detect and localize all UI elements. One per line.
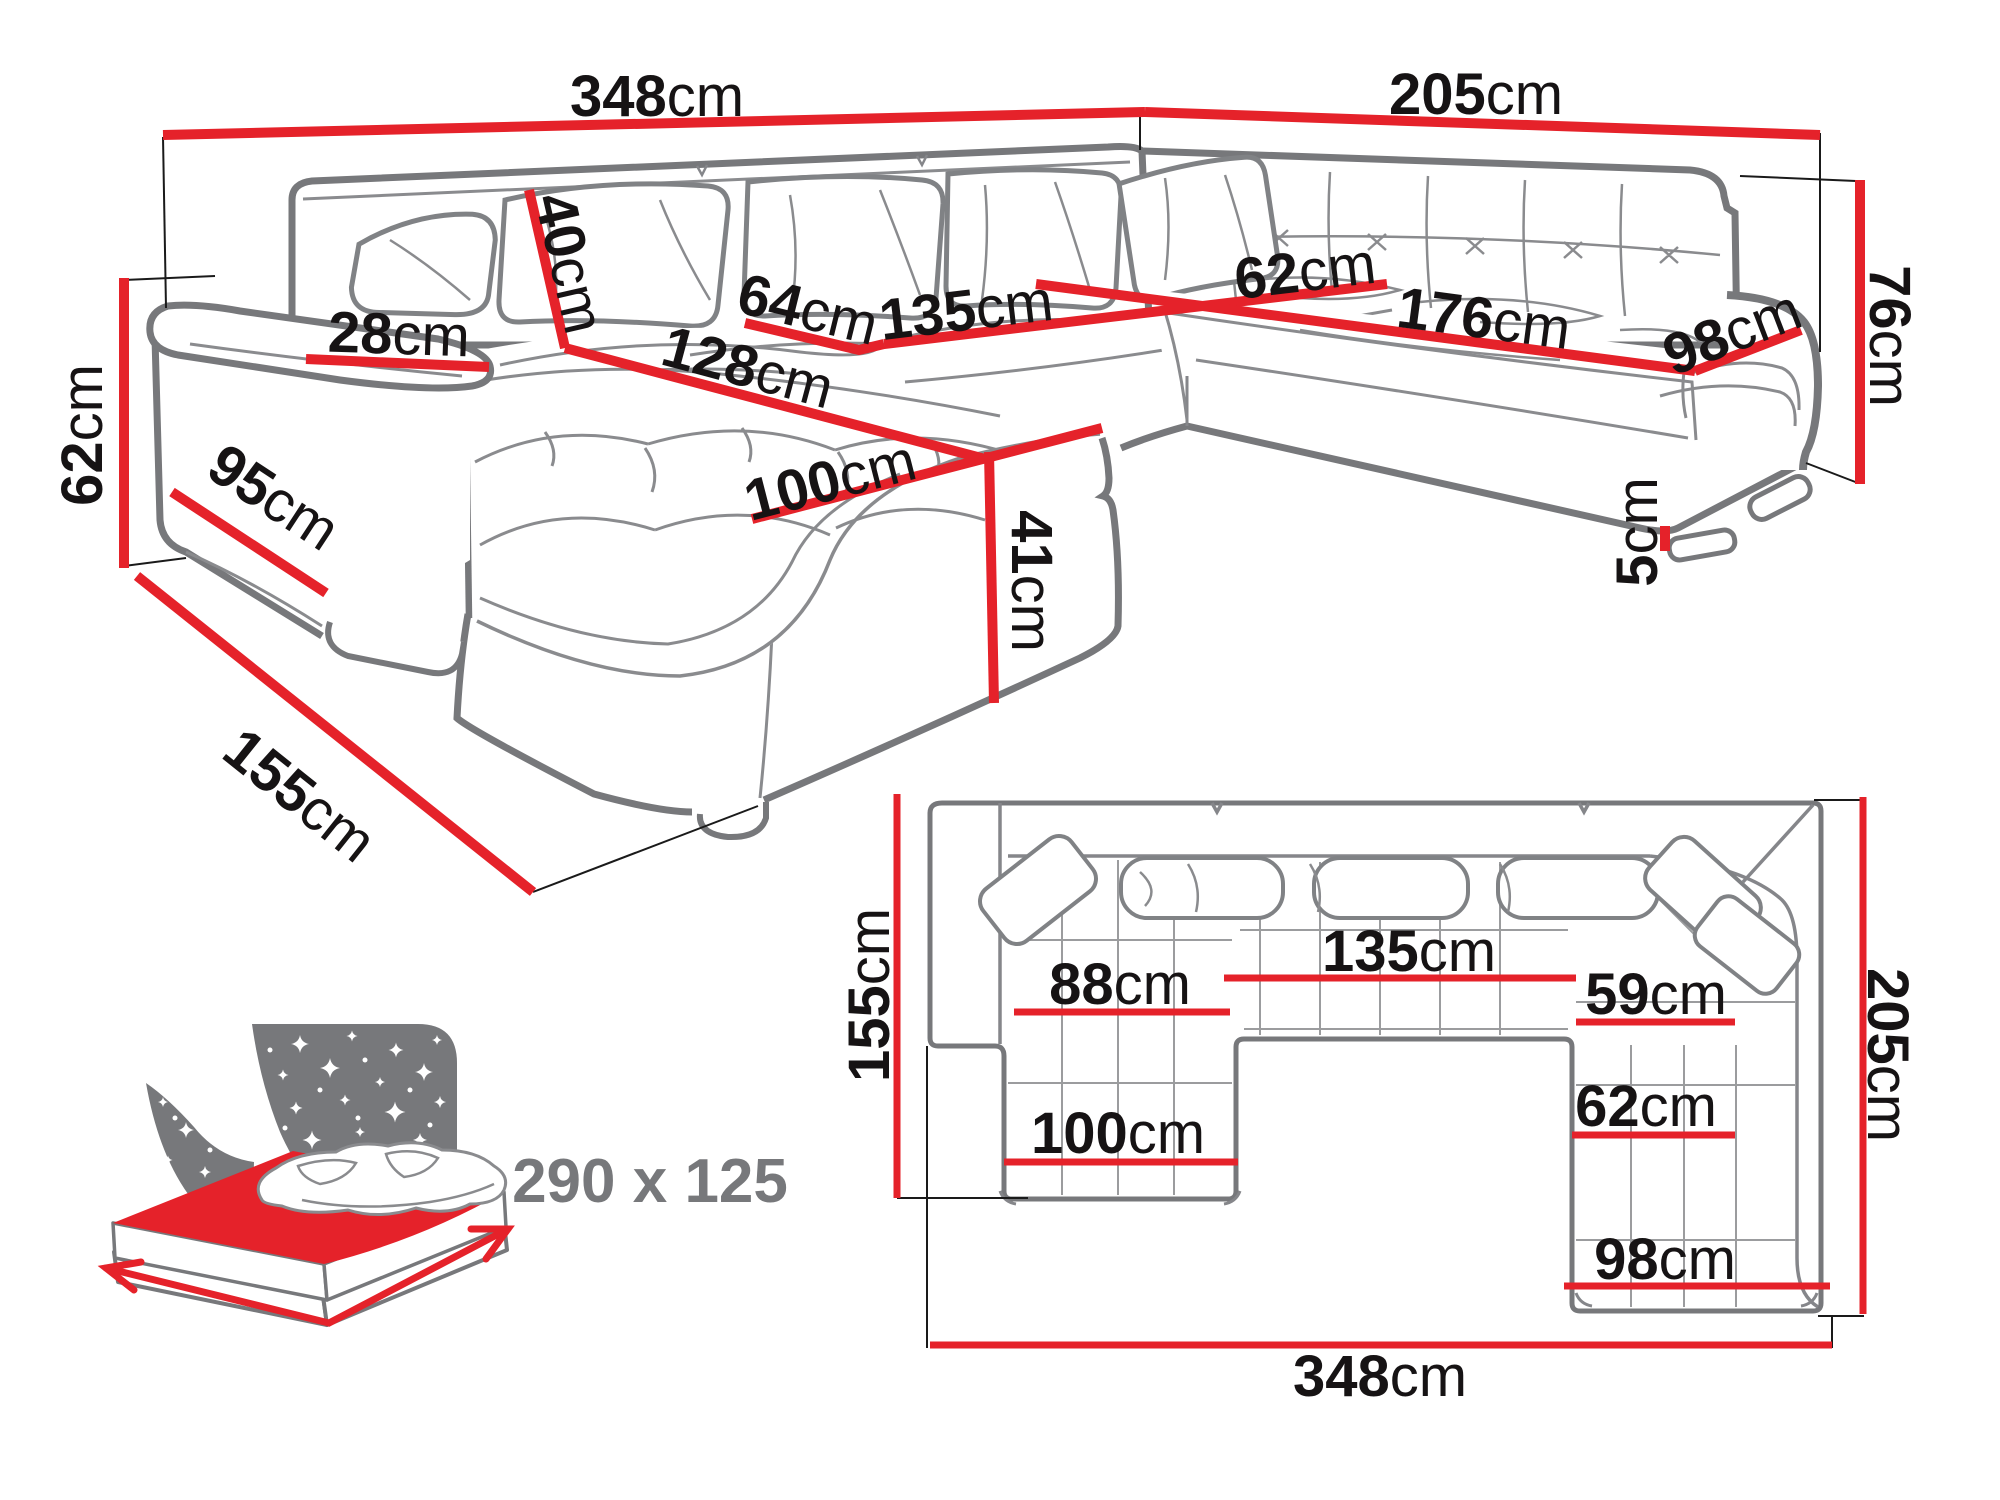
- svg-text:348cm: 348cm: [570, 64, 744, 129]
- svg-text:62cm: 62cm: [50, 364, 115, 506]
- svg-text:28cm: 28cm: [327, 300, 471, 370]
- svg-text:290 x 125: 290 x 125: [512, 1147, 788, 1216]
- svg-text:98cm: 98cm: [1594, 1227, 1736, 1292]
- svg-text:88cm: 88cm: [1049, 952, 1191, 1017]
- svg-text:205cm: 205cm: [1389, 62, 1563, 127]
- svg-text:62cm: 62cm: [1575, 1074, 1717, 1139]
- svg-text:5cm: 5cm: [1605, 477, 1670, 587]
- svg-text:348cm: 348cm: [1293, 1344, 1467, 1409]
- svg-text:76cm: 76cm: [1857, 265, 1922, 407]
- svg-text:135cm: 135cm: [1322, 919, 1496, 984]
- svg-text:100cm: 100cm: [1031, 1101, 1205, 1166]
- svg-text:41cm: 41cm: [999, 510, 1064, 652]
- svg-text:155cm: 155cm: [837, 908, 902, 1082]
- svg-text:205cm: 205cm: [1855, 968, 1920, 1142]
- svg-text:59cm: 59cm: [1585, 962, 1727, 1027]
